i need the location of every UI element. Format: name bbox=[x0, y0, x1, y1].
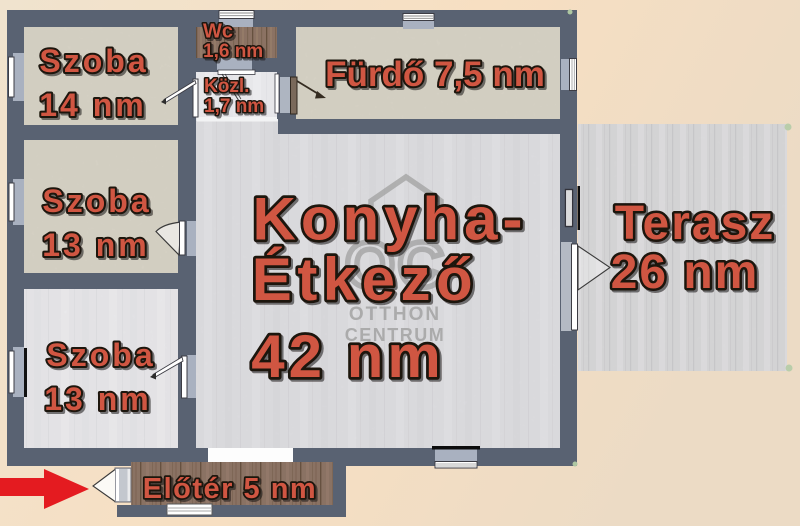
svg-text:14 nm: 14 nm bbox=[39, 87, 146, 123]
svg-text:13 nm: 13 nm bbox=[42, 227, 149, 263]
svg-text:42 nm: 42 nm bbox=[251, 323, 444, 390]
svg-text:Étkező: Étkező bbox=[252, 246, 478, 313]
svg-text:1,6 nm: 1,6 nm bbox=[203, 41, 263, 62]
svg-text:Szoba: Szoba bbox=[39, 43, 148, 79]
svg-text:26 nm: 26 nm bbox=[611, 246, 760, 299]
svg-text:1,7 nm: 1,7 nm bbox=[204, 96, 264, 117]
svg-text:Wc: Wc bbox=[203, 21, 233, 43]
svg-text:Előtér 5 nm: Előtér 5 nm bbox=[143, 473, 317, 505]
svg-text:Konyha-: Konyha- bbox=[253, 186, 528, 253]
svg-text:Szoba: Szoba bbox=[42, 183, 151, 219]
svg-text:13 nm: 13 nm bbox=[44, 381, 151, 417]
svg-text:Közl.: Közl. bbox=[204, 76, 249, 97]
svg-text:Szoba: Szoba bbox=[46, 337, 155, 373]
svg-text:Terasz: Terasz bbox=[615, 197, 776, 250]
svg-text:Fürdő 7,5 nm: Fürdő 7,5 nm bbox=[325, 55, 545, 94]
